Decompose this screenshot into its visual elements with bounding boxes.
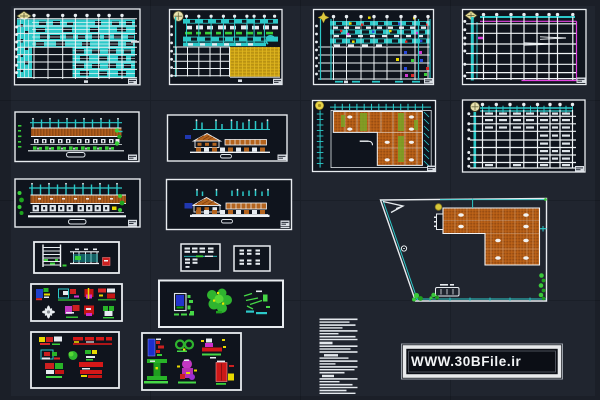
svg-text:WWW.30BFile.ir: WWW.30BFile.ir (411, 354, 522, 369)
